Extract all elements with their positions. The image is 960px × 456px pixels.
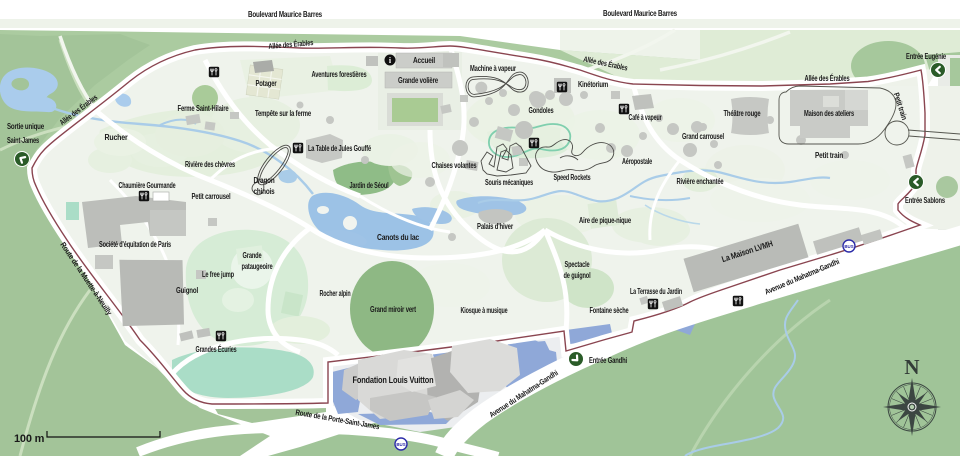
svg-text:Grand miroir vert: Grand miroir vert [370, 305, 416, 314]
svg-text:Fondation Louis Vuitton: Fondation Louis Vuitton [353, 375, 434, 386]
svg-text:100 m: 100 m [14, 433, 45, 445]
svg-text:Saint-James: Saint-James [7, 136, 40, 145]
svg-text:Rucher: Rucher [105, 133, 128, 142]
svg-text:N: N [904, 355, 919, 379]
svg-text:Tempête sur la ferme: Tempête sur la ferme [255, 109, 312, 118]
svg-text:chinois: chinois [254, 187, 276, 196]
svg-text:La Terrasse du Jardin: La Terrasse du Jardin [630, 287, 682, 296]
svg-text:Machine à vapeur: Machine à vapeur [470, 64, 516, 73]
svg-text:Café à vapeur: Café à vapeur [629, 113, 662, 122]
svg-text:Grande volière: Grande volière [398, 76, 439, 85]
svg-text:Petit train: Petit train [815, 151, 843, 160]
svg-text:Dragon: Dragon [254, 176, 275, 185]
svg-text:Aventures forestières: Aventures forestières [312, 70, 368, 79]
svg-text:Ferme Saint-Hilaire: Ferme Saint-Hilaire [178, 104, 230, 113]
svg-text:Grand carrousel: Grand carrousel [682, 132, 724, 141]
svg-text:Canots du lac: Canots du lac [377, 233, 420, 242]
svg-text:Fontaine sèche: Fontaine sèche [590, 306, 630, 315]
svg-text:pataugeoire: pataugeoire [242, 262, 274, 271]
svg-text:Aire de pique-nique: Aire de pique-nique [579, 216, 632, 225]
svg-text:Potager: Potager [256, 79, 277, 88]
svg-text:Théâtre rouge: Théâtre rouge [724, 109, 762, 118]
svg-text:Entrée Sablons: Entrée Sablons [905, 196, 946, 205]
svg-text:Souris mécaniques: Souris mécaniques [485, 178, 534, 187]
svg-text:Société d'équitation de Paris: Société d'équitation de Paris [99, 240, 172, 249]
svg-text:Sortie unique: Sortie unique [7, 122, 45, 131]
svg-text:Jardin de Séoul: Jardin de Séoul [350, 181, 389, 190]
svg-text:Kiosque à musique: Kiosque à musique [461, 306, 509, 315]
svg-text:Petit carrousel: Petit carrousel [192, 192, 231, 201]
svg-text:Rivière des chèvres: Rivière des chèvres [185, 160, 236, 169]
svg-text:Entrée Eugénie: Entrée Eugénie [906, 52, 947, 61]
svg-text:Gondoles: Gondoles [529, 106, 555, 115]
svg-text:Allée des Érables: Allée des Érables [805, 74, 851, 83]
svg-text:Rocher alpin: Rocher alpin [320, 289, 351, 298]
svg-text:Grandes Écuries: Grandes Écuries [196, 345, 238, 354]
svg-text:Boulevard Maurice Barres: Boulevard Maurice Barres [603, 9, 678, 18]
svg-text:de guignol: de guignol [564, 271, 591, 280]
svg-text:Rivière enchantée: Rivière enchantée [677, 177, 725, 186]
svg-text:La Table de Jules Gouffé: La Table de Jules Gouffé [308, 144, 372, 153]
svg-text:Maison des ateliers: Maison des ateliers [804, 109, 855, 118]
svg-text:Kinétorium: Kinétorium [578, 80, 608, 89]
svg-text:Palais d'hiver: Palais d'hiver [477, 222, 513, 231]
svg-text:Boulevard Maurice Barres: Boulevard Maurice Barres [248, 10, 323, 19]
svg-text:BUS: BUS [844, 244, 853, 249]
svg-text:Chaumière Gourmande: Chaumière Gourmande [119, 181, 177, 190]
svg-text:Aéropostale: Aéropostale [622, 157, 653, 166]
svg-text:Entrée Gandhi: Entrée Gandhi [589, 356, 627, 365]
svg-text:Speed Rockets: Speed Rockets [554, 173, 592, 182]
svg-text:Guignol: Guignol [176, 286, 198, 295]
svg-text:Le free jump: Le free jump [202, 270, 234, 279]
svg-text:Grande: Grande [243, 251, 263, 260]
svg-text:Accueil: Accueil [413, 56, 435, 65]
svg-text:Chaises volantes: Chaises volantes [432, 161, 478, 170]
svg-text:BUS: BUS [396, 442, 405, 447]
svg-text:Spectacle: Spectacle [565, 260, 591, 269]
